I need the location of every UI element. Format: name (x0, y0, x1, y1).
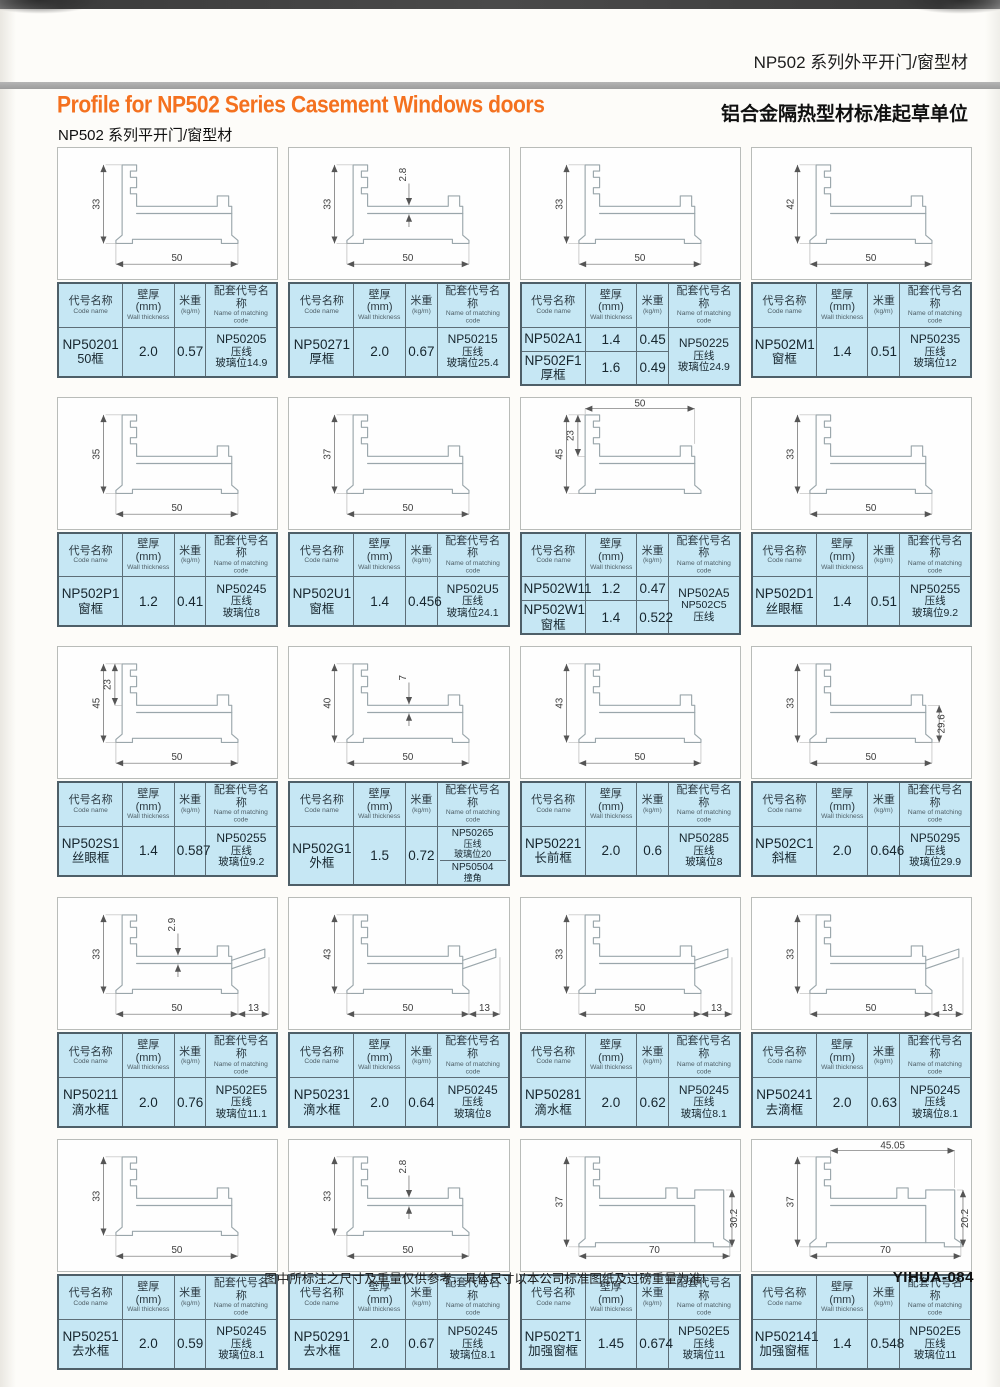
profile-cell: 3350 代号名称Code name 壁厚(mm)Wall thickness … (57, 147, 278, 386)
spec-data-row: NP502P1窗框1.20.41NP50245压线玻璃位8 (58, 577, 277, 627)
col-header-matching: 配套代号名称Name of matching code (206, 782, 277, 826)
code-name-cell: NP502A1 (521, 327, 586, 351)
spec-header-row: 代号名称Code name 壁厚(mm)Wall thickness 米重(kg… (521, 782, 740, 826)
col-header-weight: 米重(kg/m) (868, 533, 900, 577)
dimension-label: 23 (565, 429, 576, 440)
meter-weight-value: 0.47 (637, 577, 669, 601)
wall-thickness-value: 1.4 (354, 577, 406, 627)
spec-data-row: NP502C1斜框2.00.646NP50295压线玻璃位29.9 (752, 826, 971, 876)
col-header-thickness: 壁厚(mm)Wall thickness (354, 533, 406, 577)
dimension-label: 45 (554, 448, 565, 459)
dimension-label: 2.9 (167, 918, 178, 932)
spec-data-row: NP502S1丝眼框1.40.587NP50255压线玻璃位9.2 (58, 826, 277, 876)
matching-code-cell: NP50285压线玻璃位8 (668, 826, 739, 876)
profile-drawing: 335013 (751, 897, 972, 1030)
scan-artifact (900, 0, 1000, 14)
profile-cross-section-svg: 3329.650 (752, 647, 971, 778)
profile-drawing: 3745.0520.270 (751, 1139, 972, 1272)
wall-thickness-value: 1.4 (816, 577, 868, 627)
matching-code-cell: NP50295压线玻璃位29.9 (900, 826, 971, 876)
col-header-matching: 配套代号名称Name of matching code (900, 782, 971, 826)
profile-drawing: 452350 (57, 646, 278, 779)
dimension-label: 33 (554, 198, 565, 209)
dimension-label: 33 (554, 949, 565, 960)
code-name-cell: NP502W1窗框 (521, 601, 586, 634)
spec-data-row: NP50291去水框2.00.67NP50245压线玻璃位8.1 (289, 1319, 508, 1369)
wall-thickness-value: 1.4 (585, 601, 637, 634)
dimension-label: 33 (91, 198, 102, 209)
matching-code-cell: NP50235压线玻璃位12 (900, 327, 971, 377)
col-header-code: 代号名称Code name (289, 782, 354, 826)
spec-data-row: NP50231滴水框2.00.64NP50245压线玻璃位8 (289, 1078, 508, 1128)
spec-header-row: 代号名称Code name 壁厚(mm)Wall thickness 米重(kg… (58, 1033, 277, 1077)
spec-table: 代号名称Code name 壁厚(mm)Wall thickness 米重(kg… (520, 532, 741, 636)
spec-header-row: 代号名称Code name 壁厚(mm)Wall thickness 米重(kg… (521, 533, 740, 577)
dimension-label: 70 (648, 1245, 659, 1256)
profile-cross-section-svg: 3745.0520.270 (752, 1140, 971, 1271)
code-name-cell: NP50221长前框 (521, 826, 586, 876)
profile-cell: 452350 代号名称Code name 壁厚(mm)Wall thicknes… (57, 646, 278, 886)
col-header-weight: 米重(kg/m) (868, 782, 900, 826)
matching-code-cell: NP502E5压线玻璃位11 (668, 1319, 739, 1369)
spec-data-row: NP502G1外框1.50.72NP50265压线玻璃位20NP50504撞角 (289, 826, 508, 885)
wall-thickness-value: 1.6 (585, 351, 637, 384)
profile-drawing: 4350 (520, 646, 741, 779)
dimension-label: 50 (171, 1003, 182, 1014)
spec-table: 代号名称Code name 壁厚(mm)Wall thickness 米重(kg… (520, 1032, 741, 1128)
dimension-label: 50 (171, 1245, 182, 1256)
col-header-matching: 配套代号名称Name of matching code (668, 283, 739, 327)
dimension-label: 20.2 (960, 1209, 971, 1228)
col-header-weight: 米重(kg/m) (637, 782, 669, 826)
scan-artifact (0, 0, 100, 14)
spec-table: 代号名称Code name 壁厚(mm)Wall thickness 米重(kg… (57, 781, 278, 877)
col-header-matching: 配套代号名称Name of matching code (206, 283, 277, 327)
matching-code-cell: NP50215压线玻璃位25.4 (437, 327, 508, 377)
dimension-label: 50 (171, 253, 182, 264)
code-name-cell: NP502G1外框 (289, 826, 354, 885)
meter-weight-value: 0.646 (868, 826, 900, 876)
meter-weight-value: 0.587 (174, 826, 206, 876)
profile-drawing: 435013 (288, 897, 509, 1030)
meter-weight-value: 0.51 (868, 327, 900, 377)
wall-thickness-value: 1.4 (816, 1319, 868, 1369)
spec-header-row: 代号名称Code name 壁厚(mm)Wall thickness 米重(kg… (752, 1033, 971, 1077)
profile-cross-section-svg: 3350 (752, 398, 971, 529)
meter-weight-value: 0.6 (637, 826, 669, 876)
col-header-weight: 米重(kg/m) (405, 283, 437, 327)
col-header-weight: 米重(kg/m) (174, 1033, 206, 1077)
profile-cell: 40750 代号名称Code name 壁厚(mm)Wall thickness… (288, 646, 509, 886)
profile-cell: 3745.0520.270 代号名称Code name 壁厚(mm)Wall t… (751, 1139, 972, 1370)
col-header-matching: 配套代号名称Name of matching code (900, 533, 971, 577)
dimension-label: 43 (323, 949, 334, 960)
code-name-cell: NP502W11 (521, 577, 586, 601)
header-divider (0, 82, 1000, 89)
profile-cross-section-svg: 335013 (752, 898, 971, 1029)
matching-code-cell: NP50245压线玻璃位8 (206, 577, 277, 627)
profile-cell: 332.95013 代号名称Code name 壁厚(mm)Wall thick… (57, 897, 278, 1128)
profile-cross-section-svg: 3350 (58, 148, 277, 279)
col-header-code: 代号名称Code name (58, 1033, 123, 1077)
col-header-weight: 米重(kg/m) (174, 283, 206, 327)
col-header-code: 代号名称Code name (289, 533, 354, 577)
code-name-cell: NP502F1厚框 (521, 351, 586, 384)
meter-weight-value: 0.59 (174, 1319, 206, 1369)
profile-drawing: 3730.270 (520, 1139, 741, 1272)
spec-header-row: 代号名称Code name 壁厚(mm)Wall thickness 米重(kg… (752, 283, 971, 327)
matching-code-cell: NP50255压线玻璃位9.2 (206, 826, 277, 876)
profile-drawing: 332.95013 (57, 897, 278, 1030)
profile-drawing: 40750 (288, 646, 509, 779)
spec-header-row: 代号名称Code name 壁厚(mm)Wall thickness 米重(kg… (289, 1033, 508, 1077)
dimension-label: 50 (171, 752, 182, 763)
spec-data-row: NP50251去水框2.00.59NP50245压线玻璃位8.1 (58, 1319, 277, 1369)
profile-cross-section-svg: 4350 (521, 647, 740, 778)
profile-cell: 3350 代号名称Code name 壁厚(mm)Wall thickness … (57, 1139, 278, 1370)
wall-thickness-value: 2.0 (123, 1319, 175, 1369)
wall-thickness-value: 1.2 (123, 577, 175, 627)
col-header-matching: 配套代号名称Name of matching code (668, 1033, 739, 1077)
wall-thickness-value: 1.4 (585, 327, 637, 351)
col-header-code: 代号名称Code name (752, 283, 817, 327)
profile-drawing: 3750 (288, 397, 509, 530)
dimension-label: 50 (634, 398, 645, 409)
spec-data-row: NP50241去滴框2.00.63NP50245压线玻璃位8.1 (752, 1078, 971, 1128)
col-header-weight: 米重(kg/m) (405, 782, 437, 826)
col-header-code: 代号名称Code name (752, 782, 817, 826)
code-name-cell: NP502141加强窗框 (752, 1319, 817, 1369)
spec-table: 代号名称Code name 壁厚(mm)Wall thickness 米重(kg… (57, 282, 278, 378)
profile-grid: 3350 代号名称Code name 壁厚(mm)Wall thickness … (57, 147, 972, 1370)
meter-weight-value: 0.76 (174, 1078, 206, 1128)
dimension-label: 50 (865, 253, 876, 264)
col-header-code: 代号名称Code name (752, 533, 817, 577)
col-header-weight: 米重(kg/m) (868, 283, 900, 327)
meter-weight-value: 0.72 (405, 826, 437, 885)
code-name-cell: NP50211滴水框 (58, 1078, 123, 1128)
code-name-cell: NP50281滴水框 (521, 1078, 586, 1128)
dimension-label: 50 (403, 752, 414, 763)
code-name-cell: NP5020150框 (58, 327, 123, 377)
col-header-thickness: 壁厚(mm)Wall thickness (123, 533, 175, 577)
code-name-cell: NP502D1丝眼框 (752, 577, 817, 627)
code-name-cell: NP50251去水框 (58, 1319, 123, 1369)
spec-table: 代号名称Code name 壁厚(mm)Wall thickness 米重(kg… (751, 1274, 972, 1370)
col-header-matching: 配套代号名称Name of matching code (437, 283, 508, 327)
dimension-label: 33 (323, 198, 334, 209)
scan-top-band (0, 0, 1000, 9)
col-header-thickness: 壁厚(mm)Wall thickness (816, 1033, 868, 1077)
spec-data-row: NP50221长前框2.00.6NP50285压线玻璃位8 (521, 826, 740, 876)
meter-weight-value: 0.63 (868, 1078, 900, 1128)
code-name-cell: NP502U1窗框 (289, 577, 354, 627)
profile-drawing: 3550 (57, 397, 278, 530)
profile-cross-section-svg: 3350 (521, 148, 740, 279)
spec-data-row: NP502141加强窗框1.40.548NP502E5压线玻璃位11 (752, 1319, 971, 1369)
profile-cell: 3350 代号名称Code name 壁厚(mm)Wall thickness … (751, 397, 972, 636)
profile-drawing: 332.850 (288, 1139, 509, 1272)
spec-table: 代号名称Code name 壁厚(mm)Wall thickness 米重(kg… (751, 282, 972, 378)
col-header-thickness: 壁厚(mm)Wall thickness (585, 283, 637, 327)
profile-cross-section-svg: 332.850 (289, 1140, 508, 1271)
col-header-code: 代号名称Code name (521, 533, 586, 577)
col-header-code: 代号名称Code name (58, 283, 123, 327)
matching-code-cell: NP50255压线玻璃位9.2 (900, 577, 971, 627)
wall-thickness-value: 2.0 (816, 1078, 868, 1128)
matching-code-cell: NP502E5压线玻璃位11.1 (206, 1078, 277, 1128)
col-header-code: 代号名称Code name (521, 1033, 586, 1077)
wall-thickness-value: 2.0 (585, 1078, 637, 1128)
meter-weight-value: 0.41 (174, 577, 206, 627)
meter-weight-value: 0.548 (868, 1319, 900, 1369)
meter-weight-value: 0.57 (174, 327, 206, 377)
spec-table: 代号名称Code name 壁厚(mm)Wall thickness 米重(kg… (288, 1274, 509, 1370)
dimension-label: 50 (403, 253, 414, 264)
profile-drawing: 3329.650 (751, 646, 972, 779)
profile-cell: 332.850 代号名称Code name 壁厚(mm)Wall thickne… (288, 147, 509, 386)
profile-drawing: 335013 (520, 897, 741, 1030)
spec-table: 代号名称Code name 壁厚(mm)Wall thickness 米重(kg… (57, 1032, 278, 1128)
header-series-tag: NP502 系列外平开门/窗型材 (754, 48, 968, 73)
profile-cell: 335013 代号名称Code name 壁厚(mm)Wall thicknes… (751, 897, 972, 1128)
spec-header-row: 代号名称Code name 壁厚(mm)Wall thickness 米重(kg… (289, 533, 508, 577)
spec-table: 代号名称Code name 壁厚(mm)Wall thickness 米重(kg… (288, 532, 509, 628)
col-header-thickness: 壁厚(mm)Wall thickness (123, 1033, 175, 1077)
code-name-cell: NP50241去滴框 (752, 1078, 817, 1128)
spec-data-row: NP5020150框2.00.57NP50205压线玻璃位14.9 (58, 327, 277, 377)
dimension-label: 37 (554, 1196, 565, 1207)
profile-cross-section-svg: 40750 (289, 647, 508, 778)
page-subtitle: NP502 系列平开门/窗型材 (58, 124, 232, 145)
matching-code-cell: NP502A5NP502C5压线 (668, 577, 739, 634)
spec-table: 代号名称Code name 壁厚(mm)Wall thickness 米重(kg… (751, 781, 972, 877)
col-header-thickness: 壁厚(mm)Wall thickness (354, 1033, 406, 1077)
spec-header-row: 代号名称Code name 壁厚(mm)Wall thickness 米重(kg… (752, 533, 971, 577)
col-header-thickness: 壁厚(mm)Wall thickness (354, 782, 406, 826)
page-title: Profile for NP502 Series Casement Window… (57, 92, 545, 120)
dimension-label: 33 (323, 1190, 334, 1201)
dimension-label: 35 (91, 448, 102, 459)
meter-weight-value: 0.51 (868, 577, 900, 627)
wall-thickness-value: 1.2 (585, 577, 637, 601)
dimension-label: 23 (103, 679, 114, 690)
dimension-label: 43 (554, 697, 565, 708)
page-footer: 图中所标注之尺寸及重量仅供参考，具体尺寸以本公司标准图纸及过磅重量为准! YIH… (57, 1268, 974, 1287)
spec-table: 代号名称Code name 壁厚(mm)Wall thickness 米重(kg… (751, 532, 972, 628)
dimension-label: 2.8 (398, 1159, 409, 1173)
dimension-label: 33 (91, 1190, 102, 1201)
meter-weight-value: 0.522 (637, 601, 669, 634)
dimension-label: 33 (785, 448, 796, 459)
spec-data-row: NP50271厚框2.00.67NP50215压线玻璃位25.4 (289, 327, 508, 377)
dimension-label: 33 (91, 949, 102, 960)
matching-code-cell: NP50265压线玻璃位20NP50504撞角 (437, 826, 508, 885)
matching-code-cell: NP50245压线玻璃位8 (437, 1078, 508, 1128)
spec-header-row: 代号名称Code name 壁厚(mm)Wall thickness 米重(kg… (521, 1033, 740, 1077)
col-header-weight: 米重(kg/m) (174, 782, 206, 826)
meter-weight-value: 0.456 (405, 577, 437, 627)
profile-cross-section-svg: 502345 (521, 398, 740, 529)
dimension-label: 70 (880, 1245, 891, 1256)
col-header-code: 代号名称Code name (289, 283, 354, 327)
catalog-page: NP502 系列外平开门/窗型材 铝合金隔热型材标准起草单位 Profile f… (0, 0, 1000, 1387)
wall-thickness-value: 2.0 (123, 1078, 175, 1128)
dimension-label: 50 (634, 1003, 645, 1014)
spec-data-row: NP502D1丝眼框1.40.51NP50255压线玻璃位9.2 (752, 577, 971, 627)
spec-data-row: NP50211滴水框2.00.76NP502E5压线玻璃位11.1 (58, 1078, 277, 1128)
dimension-label: 13 (248, 1003, 259, 1014)
col-header-weight: 米重(kg/m) (637, 533, 669, 577)
profile-drawing: 502345 (520, 397, 741, 530)
spec-data-row: NP502U1窗框1.40.456NP502U5压线玻璃位24.1 (289, 577, 508, 627)
col-header-code: 代号名称Code name (289, 1033, 354, 1077)
dimension-label: 50 (634, 253, 645, 264)
spec-table: 代号名称Code name 壁厚(mm)Wall thickness 米重(kg… (288, 282, 509, 378)
code-name-cell: NP502M1窗框 (752, 327, 817, 377)
wall-thickness-value: 1.45 (585, 1319, 637, 1369)
profile-cell: 3730.270 代号名称Code name 壁厚(mm)Wall thickn… (520, 1139, 741, 1370)
code-name-cell: NP502C1斜框 (752, 826, 817, 876)
spec-header-row: 代号名称Code name 壁厚(mm)Wall thickness 米重(kg… (752, 782, 971, 826)
col-header-matching: 配套代号名称Name of matching code (900, 1033, 971, 1077)
spec-table: 代号名称Code name 壁厚(mm)Wall thickness 米重(kg… (288, 1032, 509, 1128)
spec-table: 代号名称Code name 壁厚(mm)Wall thickness 米重(kg… (57, 1274, 278, 1370)
spec-data-row: NP502T1加强窗框1.450.674NP502E5压线玻璃位11 (521, 1319, 740, 1369)
dimension-label: 13 (942, 1003, 953, 1014)
profile-cell: 335013 代号名称Code name 壁厚(mm)Wall thicknes… (520, 897, 741, 1128)
col-header-thickness: 壁厚(mm)Wall thickness (123, 283, 175, 327)
code-name-cell: NP502T1加强窗框 (521, 1319, 586, 1369)
spec-data-row: NP502A11.40.45NP50225压线玻璃位24.9 (521, 327, 740, 351)
code-name-cell: NP502S1丝眼框 (58, 826, 123, 876)
spec-table: 代号名称Code name 壁厚(mm)Wall thickness 米重(kg… (751, 1032, 972, 1128)
profile-cross-section-svg: 332.850 (289, 148, 508, 279)
col-header-code: 代号名称Code name (521, 283, 586, 327)
meter-weight-value: 0.45 (637, 327, 669, 351)
profile-cell: 3550 代号名称Code name 壁厚(mm)Wall thickness … (57, 397, 278, 636)
matching-code-cell: NP502E5压线玻璃位11 (900, 1319, 971, 1369)
meter-weight-value: 0.62 (637, 1078, 669, 1128)
profile-cross-section-svg: 452350 (58, 647, 277, 778)
matching-code-cell: NP50245压线玻璃位8.1 (437, 1319, 508, 1369)
col-header-thickness: 壁厚(mm)Wall thickness (816, 533, 868, 577)
code-name-cell: NP502P1窗框 (58, 577, 123, 627)
dimension-label: 45.05 (880, 1141, 905, 1152)
spec-table: 代号名称Code name 壁厚(mm)Wall thickness 米重(kg… (57, 532, 278, 628)
page-code: YIHUA-084 (893, 1269, 974, 1286)
wall-thickness-value: 1.4 (816, 327, 868, 377)
code-name-cell: NP50231滴水框 (289, 1078, 354, 1128)
dimension-label: 30.2 (729, 1209, 740, 1228)
footer-note: 图中所标注之尺寸及重量仅供参考，具体尺寸以本公司标准图纸及过磅重量为准! (57, 1268, 873, 1287)
dimension-label: 29.6 (936, 714, 947, 734)
profile-cell: 4350 代号名称Code name 壁厚(mm)Wall thickness … (520, 646, 741, 886)
dimension-label: 13 (479, 1003, 490, 1014)
spec-table: 代号名称Code name 壁厚(mm)Wall thickness 米重(kg… (520, 781, 741, 877)
col-header-matching: 配套代号名称Name of matching code (206, 1033, 277, 1077)
spec-table: 代号名称Code name 壁厚(mm)Wall thickness 米重(kg… (520, 1274, 741, 1370)
profile-drawing: 4250 (751, 147, 972, 280)
col-header-matching: 配套代号名称Name of matching code (668, 533, 739, 577)
col-header-matching: 配套代号名称Name of matching code (437, 782, 508, 826)
matching-code-cell: NP50245压线玻璃位8.1 (900, 1078, 971, 1128)
col-header-matching: 配套代号名称Name of matching code (437, 1033, 508, 1077)
profile-cross-section-svg: 332.95013 (58, 898, 277, 1029)
spec-data-row: NP502M1窗框1.40.51NP50235压线玻璃位12 (752, 327, 971, 377)
col-header-matching: 配套代号名称Name of matching code (900, 283, 971, 327)
matching-code-cell: NP50205压线玻璃位14.9 (206, 327, 277, 377)
spec-header-row: 代号名称Code name 壁厚(mm)Wall thickness 米重(kg… (289, 283, 508, 327)
dimension-label: 50 (865, 752, 876, 763)
col-header-matching: 配套代号名称Name of matching code (437, 533, 508, 577)
col-header-weight: 米重(kg/m) (174, 533, 206, 577)
spec-header-row: 代号名称Code name 壁厚(mm)Wall thickness 米重(kg… (289, 782, 508, 826)
col-header-thickness: 壁厚(mm)Wall thickness (354, 283, 406, 327)
matching-code-cell: NP50245压线玻璃位8.1 (206, 1319, 277, 1369)
dimension-label: 50 (403, 1003, 414, 1014)
dimension-label: 13 (711, 1003, 722, 1014)
profile-cell: 3329.650 代号名称Code name 壁厚(mm)Wall thickn… (751, 646, 972, 886)
col-header-weight: 米重(kg/m) (637, 283, 669, 327)
wall-thickness-value: 1.5 (354, 826, 406, 885)
profile-cell: 502345 代号名称Code name 壁厚(mm)Wall thicknes… (520, 397, 741, 636)
meter-weight-value: 0.674 (637, 1319, 669, 1369)
profile-cross-section-svg: 3730.270 (521, 1140, 740, 1271)
spec-header-row: 代号名称Code name 壁厚(mm)Wall thickness 米重(kg… (58, 533, 277, 577)
dimension-label: 50 (634, 752, 645, 763)
profile-drawing: 3350 (751, 397, 972, 530)
wall-thickness-value: 2.0 (585, 826, 637, 876)
wall-thickness-value: 2.0 (354, 1078, 406, 1128)
dimension-label: 2.8 (398, 167, 409, 181)
code-name-cell: NP50291去水框 (289, 1319, 354, 1369)
profile-cross-section-svg: 3350 (58, 1140, 277, 1271)
dimension-label: 37 (323, 448, 334, 459)
spec-header-row: 代号名称Code name 壁厚(mm)Wall thickness 米重(kg… (521, 283, 740, 327)
dimension-label: 50 (171, 503, 182, 514)
spec-header-row: 代号名称Code name 壁厚(mm)Wall thickness 米重(kg… (58, 283, 277, 327)
profile-drawing: 332.850 (288, 147, 509, 280)
profile-cell: 3750 代号名称Code name 壁厚(mm)Wall thickness … (288, 397, 509, 636)
dimension-label: 50 (865, 503, 876, 514)
col-header-code: 代号名称Code name (58, 533, 123, 577)
col-header-code: 代号名称Code name (752, 1033, 817, 1077)
wall-thickness-value: 1.4 (123, 826, 175, 876)
col-header-code: 代号名称Code name (521, 782, 586, 826)
col-header-thickness: 壁厚(mm)Wall thickness (816, 283, 868, 327)
meter-weight-value: 0.67 (405, 1319, 437, 1369)
profile-cell: 4250 代号名称Code name 壁厚(mm)Wall thickness … (751, 147, 972, 386)
profile-cross-section-svg: 3750 (289, 398, 508, 529)
spec-table: 代号名称Code name 壁厚(mm)Wall thickness 米重(kg… (520, 282, 741, 386)
header-org-line: 铝合金隔热型材标准起草单位 (721, 99, 968, 126)
spec-header-row: 代号名称Code name 壁厚(mm)Wall thickness 米重(kg… (58, 782, 277, 826)
col-header-weight: 米重(kg/m) (868, 1033, 900, 1077)
profile-cell: 332.850 代号名称Code name 壁厚(mm)Wall thickne… (288, 1139, 509, 1370)
profile-cross-section-svg: 335013 (521, 898, 740, 1029)
col-header-thickness: 壁厚(mm)Wall thickness (585, 782, 637, 826)
dimension-label: 33 (785, 949, 796, 960)
profile-cross-section-svg: 3550 (58, 398, 277, 529)
col-header-thickness: 壁厚(mm)Wall thickness (585, 1033, 637, 1077)
dimension-label: 50 (403, 1245, 414, 1256)
code-name-cell: NP50271厚框 (289, 327, 354, 377)
dimension-label: 40 (323, 697, 334, 708)
col-header-weight: 米重(kg/m) (637, 1033, 669, 1077)
profile-drawing: 3350 (520, 147, 741, 280)
profile-cross-section-svg: 4250 (752, 148, 971, 279)
